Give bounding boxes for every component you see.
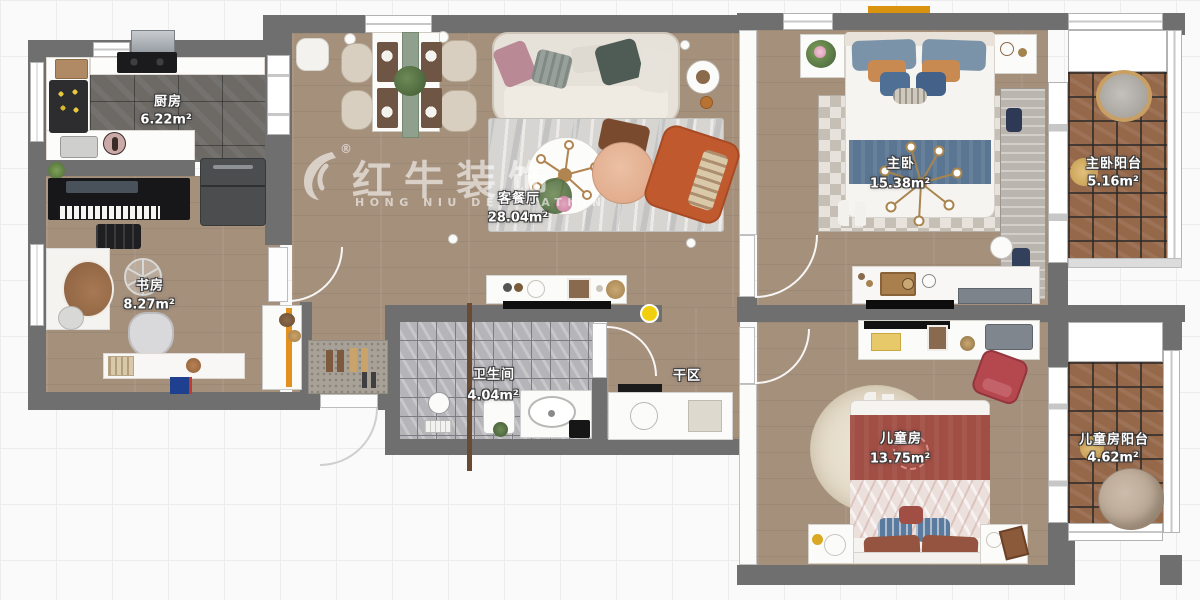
master-label: 主卧 <box>887 153 915 172</box>
placemat-3 <box>377 88 398 128</box>
placemat-4 <box>421 88 442 128</box>
kids-balcony-label: 儿童房阳台 <box>1079 429 1149 448</box>
living-label: 客餐厅 <box>498 188 540 207</box>
dining-centerpiece-plant <box>394 66 426 96</box>
kids-desk-pad <box>871 333 901 351</box>
shower-rail <box>467 303 472 471</box>
tv-decor-plate <box>527 280 545 298</box>
shoes-pair-dark <box>362 372 376 388</box>
brand-logo-icon <box>296 146 346 204</box>
coffee-cup <box>700 96 713 109</box>
wall-hall-top <box>263 15 745 33</box>
tv-decor-basket <box>606 280 625 299</box>
study-label: 书房 <box>136 275 164 294</box>
kitchen-label: 厨房 <box>154 91 182 110</box>
dry-area-sink <box>630 402 658 430</box>
wall-master-slider-nub <box>1048 263 1068 322</box>
side-table <box>686 60 720 94</box>
kids-balcony-top-sill <box>1068 322 1163 362</box>
shower-caddy <box>424 420 452 433</box>
hall-downlight-2 <box>448 234 458 244</box>
master-balcony-sliding-door <box>1048 82 1068 263</box>
master-nightstand-right <box>990 34 1037 74</box>
wall-kids-bottom <box>737 565 1075 585</box>
kids-balcony-beanbag <box>1098 468 1164 530</box>
tv-decor-dot-1 <box>503 283 512 292</box>
jewelry-box-ring <box>902 278 914 290</box>
kids-headboard <box>848 552 992 564</box>
kids-photo-frame <box>927 325 948 351</box>
kids-lamp-gold <box>812 534 823 545</box>
nightstand-clock <box>1000 42 1014 56</box>
dresser-monitor <box>958 288 1032 304</box>
kids-balcony-area: 4.62m² <box>1087 451 1138 466</box>
dining-chair-top-right <box>440 40 477 82</box>
master-tv-bar <box>866 300 954 309</box>
master-balcony-right-window <box>1167 30 1182 263</box>
study-left-window <box>30 244 44 326</box>
bathroom-door-leaf <box>592 323 607 378</box>
entry-door-arc <box>320 408 378 466</box>
partition-master-left <box>739 30 757 235</box>
wall-master-left-lower <box>737 297 757 322</box>
dresser-jewelry-box <box>880 272 916 296</box>
shower-head <box>428 392 450 414</box>
dry-area-shelf <box>618 384 662 392</box>
fridge-handle <box>213 165 253 169</box>
fridge <box>200 158 266 226</box>
bathroom-plant <box>493 422 508 437</box>
master-balcony-label: 主卧阳台 <box>1086 153 1142 172</box>
tv-decor-dot-2 <box>514 283 523 292</box>
master-balcony-beanbag <box>1096 70 1152 122</box>
master-balcony-area: 5.16m² <box>1087 175 1138 190</box>
sofa-seat-line <box>504 86 668 120</box>
kitchen-sink <box>60 136 98 158</box>
tv-screen <box>503 301 611 309</box>
kitchen-plant <box>48 162 65 179</box>
bathroom-label: 卫生间 <box>473 364 515 383</box>
master-slippers <box>838 200 868 226</box>
master-balcony-bottom-sill <box>1068 258 1182 268</box>
dining-chair-top-left <box>341 43 373 83</box>
bottle-icon <box>112 137 118 151</box>
hall-top-window <box>365 15 432 33</box>
master-balcony-top-window <box>1068 13 1163 30</box>
side-table-bowl <box>696 70 710 84</box>
dresser-perfume-2 <box>866 280 873 287</box>
hall-pouf <box>296 38 329 71</box>
stove <box>117 52 177 73</box>
master-balcony-sill <box>1068 30 1167 72</box>
kids-door-leaf <box>739 327 755 384</box>
dry-area-label: 干区 <box>673 365 701 384</box>
kitchen-left-window <box>30 62 44 142</box>
hat-large <box>279 313 295 327</box>
shoes-pair-brown <box>326 350 344 372</box>
armchair-cushion <box>687 149 730 212</box>
wall-kids-slider-nub <box>1048 322 1068 367</box>
partition-kids-left <box>739 384 757 565</box>
tv-decor-dot-3 <box>596 285 603 292</box>
wall-kids-balcony-right-top <box>1163 308 1182 350</box>
master-area: 15.38m² <box>870 177 930 192</box>
kids-balcony-sliding-door <box>1048 367 1068 523</box>
master-door-leaf <box>739 235 755 297</box>
bath-faucet <box>548 410 555 417</box>
nightstand-flower-pink <box>814 46 826 58</box>
kitchen-tray-bottle <box>103 132 126 155</box>
wardrobe-clothes-1 <box>1006 108 1022 132</box>
master-top-window <box>783 13 833 30</box>
master-stool <box>990 236 1013 259</box>
bath-stool <box>569 420 590 438</box>
kids-hand-mirror <box>960 336 975 351</box>
nightstand-dot <box>1018 48 1027 57</box>
brand-reg-mark: ® <box>340 142 352 156</box>
kitchen-sliding-door <box>267 55 290 135</box>
dry-area-mat <box>688 400 722 432</box>
desk-basket <box>108 356 134 376</box>
kids-area: 13.75m² <box>870 452 930 467</box>
wall-kids-balcony-right-nub <box>1160 555 1182 585</box>
bathroom-area: 4.04m² <box>467 389 518 404</box>
wall-bath-bottom <box>385 439 607 455</box>
piano-keys <box>58 206 160 219</box>
smart-switch-yellow-dot <box>640 304 659 323</box>
wall-bath-right-lower <box>592 377 607 455</box>
kids-balcony-right-window <box>1163 350 1180 533</box>
chair-seat-line <box>981 377 1013 399</box>
floor-plan: ® 红牛装饰 HONG NIU DECORATION <box>0 0 1200 600</box>
dresser-perfume-1 <box>858 273 865 280</box>
study-door-leaf <box>268 247 288 302</box>
dining-chair-bottom-right <box>440 90 477 132</box>
kids-tray-left <box>824 534 846 556</box>
kids-cushion-red-small <box>899 506 923 524</box>
entry-door-leaf <box>320 394 378 408</box>
cutting-board <box>55 59 88 79</box>
study-area: 8.27m² <box>123 298 174 313</box>
kids-label: 儿童房 <box>880 428 922 447</box>
watering-can <box>58 306 84 330</box>
kitchen-appliance <box>49 80 88 133</box>
dining-chair-bottom-left <box>341 90 373 130</box>
desk-wood-ball <box>186 358 201 373</box>
hall-downlight-1 <box>680 40 690 50</box>
hat-small <box>288 330 301 342</box>
kitchen-area: 6.22m² <box>140 113 191 128</box>
hall-downlight-3 <box>686 238 696 248</box>
kids-monitor <box>985 324 1033 350</box>
brand-watermark-sub: HONG NIU DECORATION <box>355 196 607 209</box>
piano-bench <box>96 224 141 249</box>
wall-bottom-left <box>28 392 320 410</box>
wall-dry-bottom <box>607 439 740 455</box>
desk-chair <box>128 312 174 358</box>
tv-photo-frame <box>567 278 591 300</box>
living-area: 28.04m² <box>488 211 548 226</box>
shoes-pair-tan <box>350 348 368 372</box>
striped-bolster <box>893 88 927 104</box>
dresser-mirror <box>922 274 936 288</box>
master-top-accent-strip <box>868 6 930 13</box>
piano-screen <box>66 181 138 193</box>
blue-storage-box <box>170 377 192 394</box>
entry-doormat <box>308 340 388 394</box>
